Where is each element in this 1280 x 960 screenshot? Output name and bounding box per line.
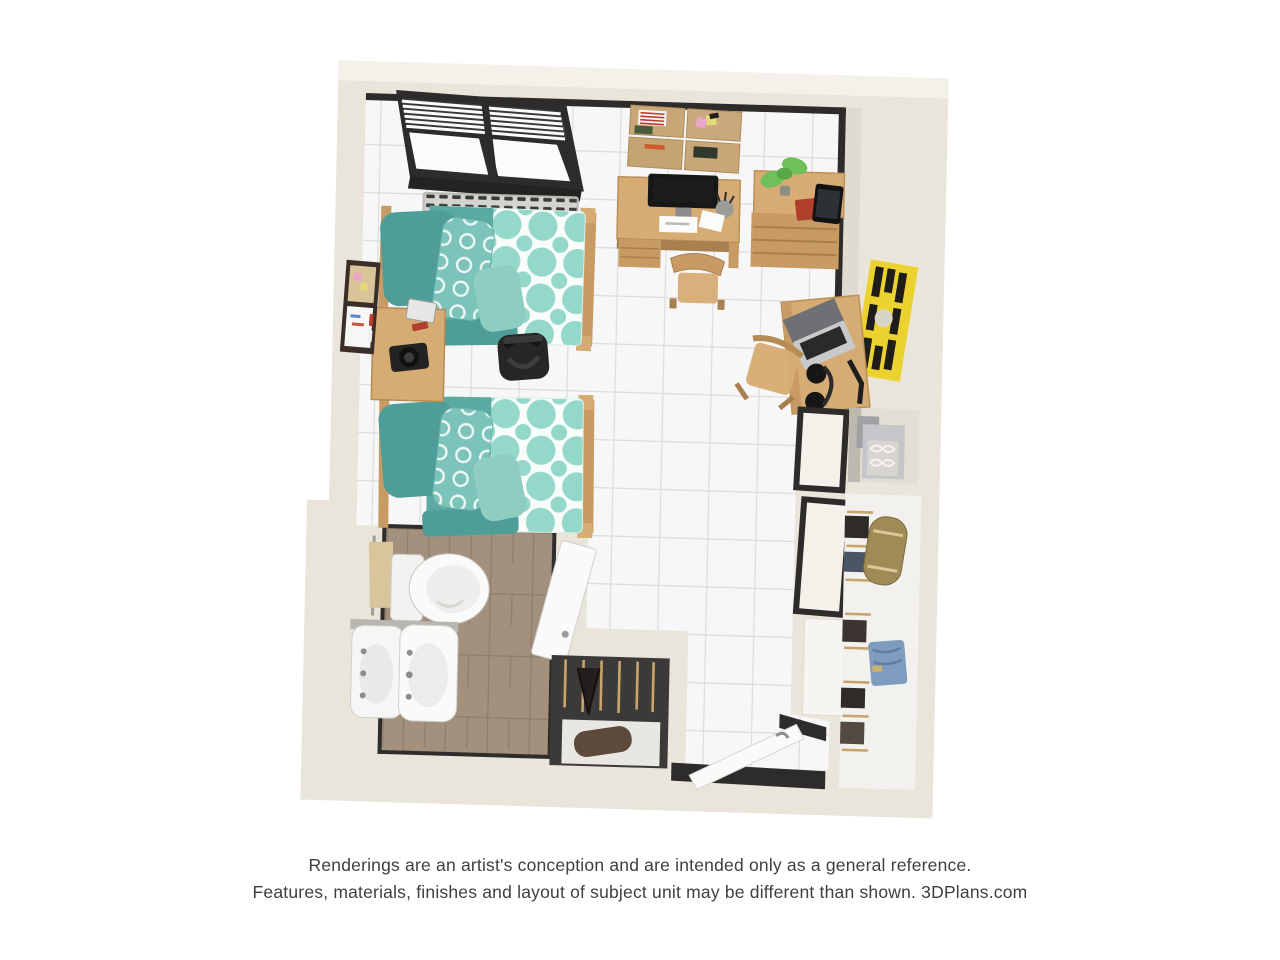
camera <box>389 342 430 372</box>
window-with-blinds <box>394 90 586 202</box>
floor-plan-rendering <box>0 0 1280 870</box>
closet-small <box>549 655 669 769</box>
tablet <box>812 183 844 224</box>
closet-tall <box>839 408 923 790</box>
black-backpack <box>497 332 551 382</box>
double-sinks <box>348 619 458 722</box>
folded-jeans <box>868 640 908 687</box>
disclaimer-line-1: Renderings are an artist's conception an… <box>0 852 1280 879</box>
nightstand <box>371 298 445 402</box>
disclaimer: Renderings are an artist's conception an… <box>0 852 1280 906</box>
storage-box-patterned <box>862 424 905 479</box>
pinned-schedule <box>638 110 667 127</box>
page: Renderings are an artist's conception an… <box>0 0 1280 960</box>
pinned-dark-photo <box>693 146 718 159</box>
memo-board <box>340 260 381 355</box>
disclaimer-line-2: Features, materials, finishes and layout… <box>0 879 1280 906</box>
pinned-photo <box>634 125 652 134</box>
toilet <box>390 552 490 625</box>
tablet-propped <box>406 299 437 323</box>
